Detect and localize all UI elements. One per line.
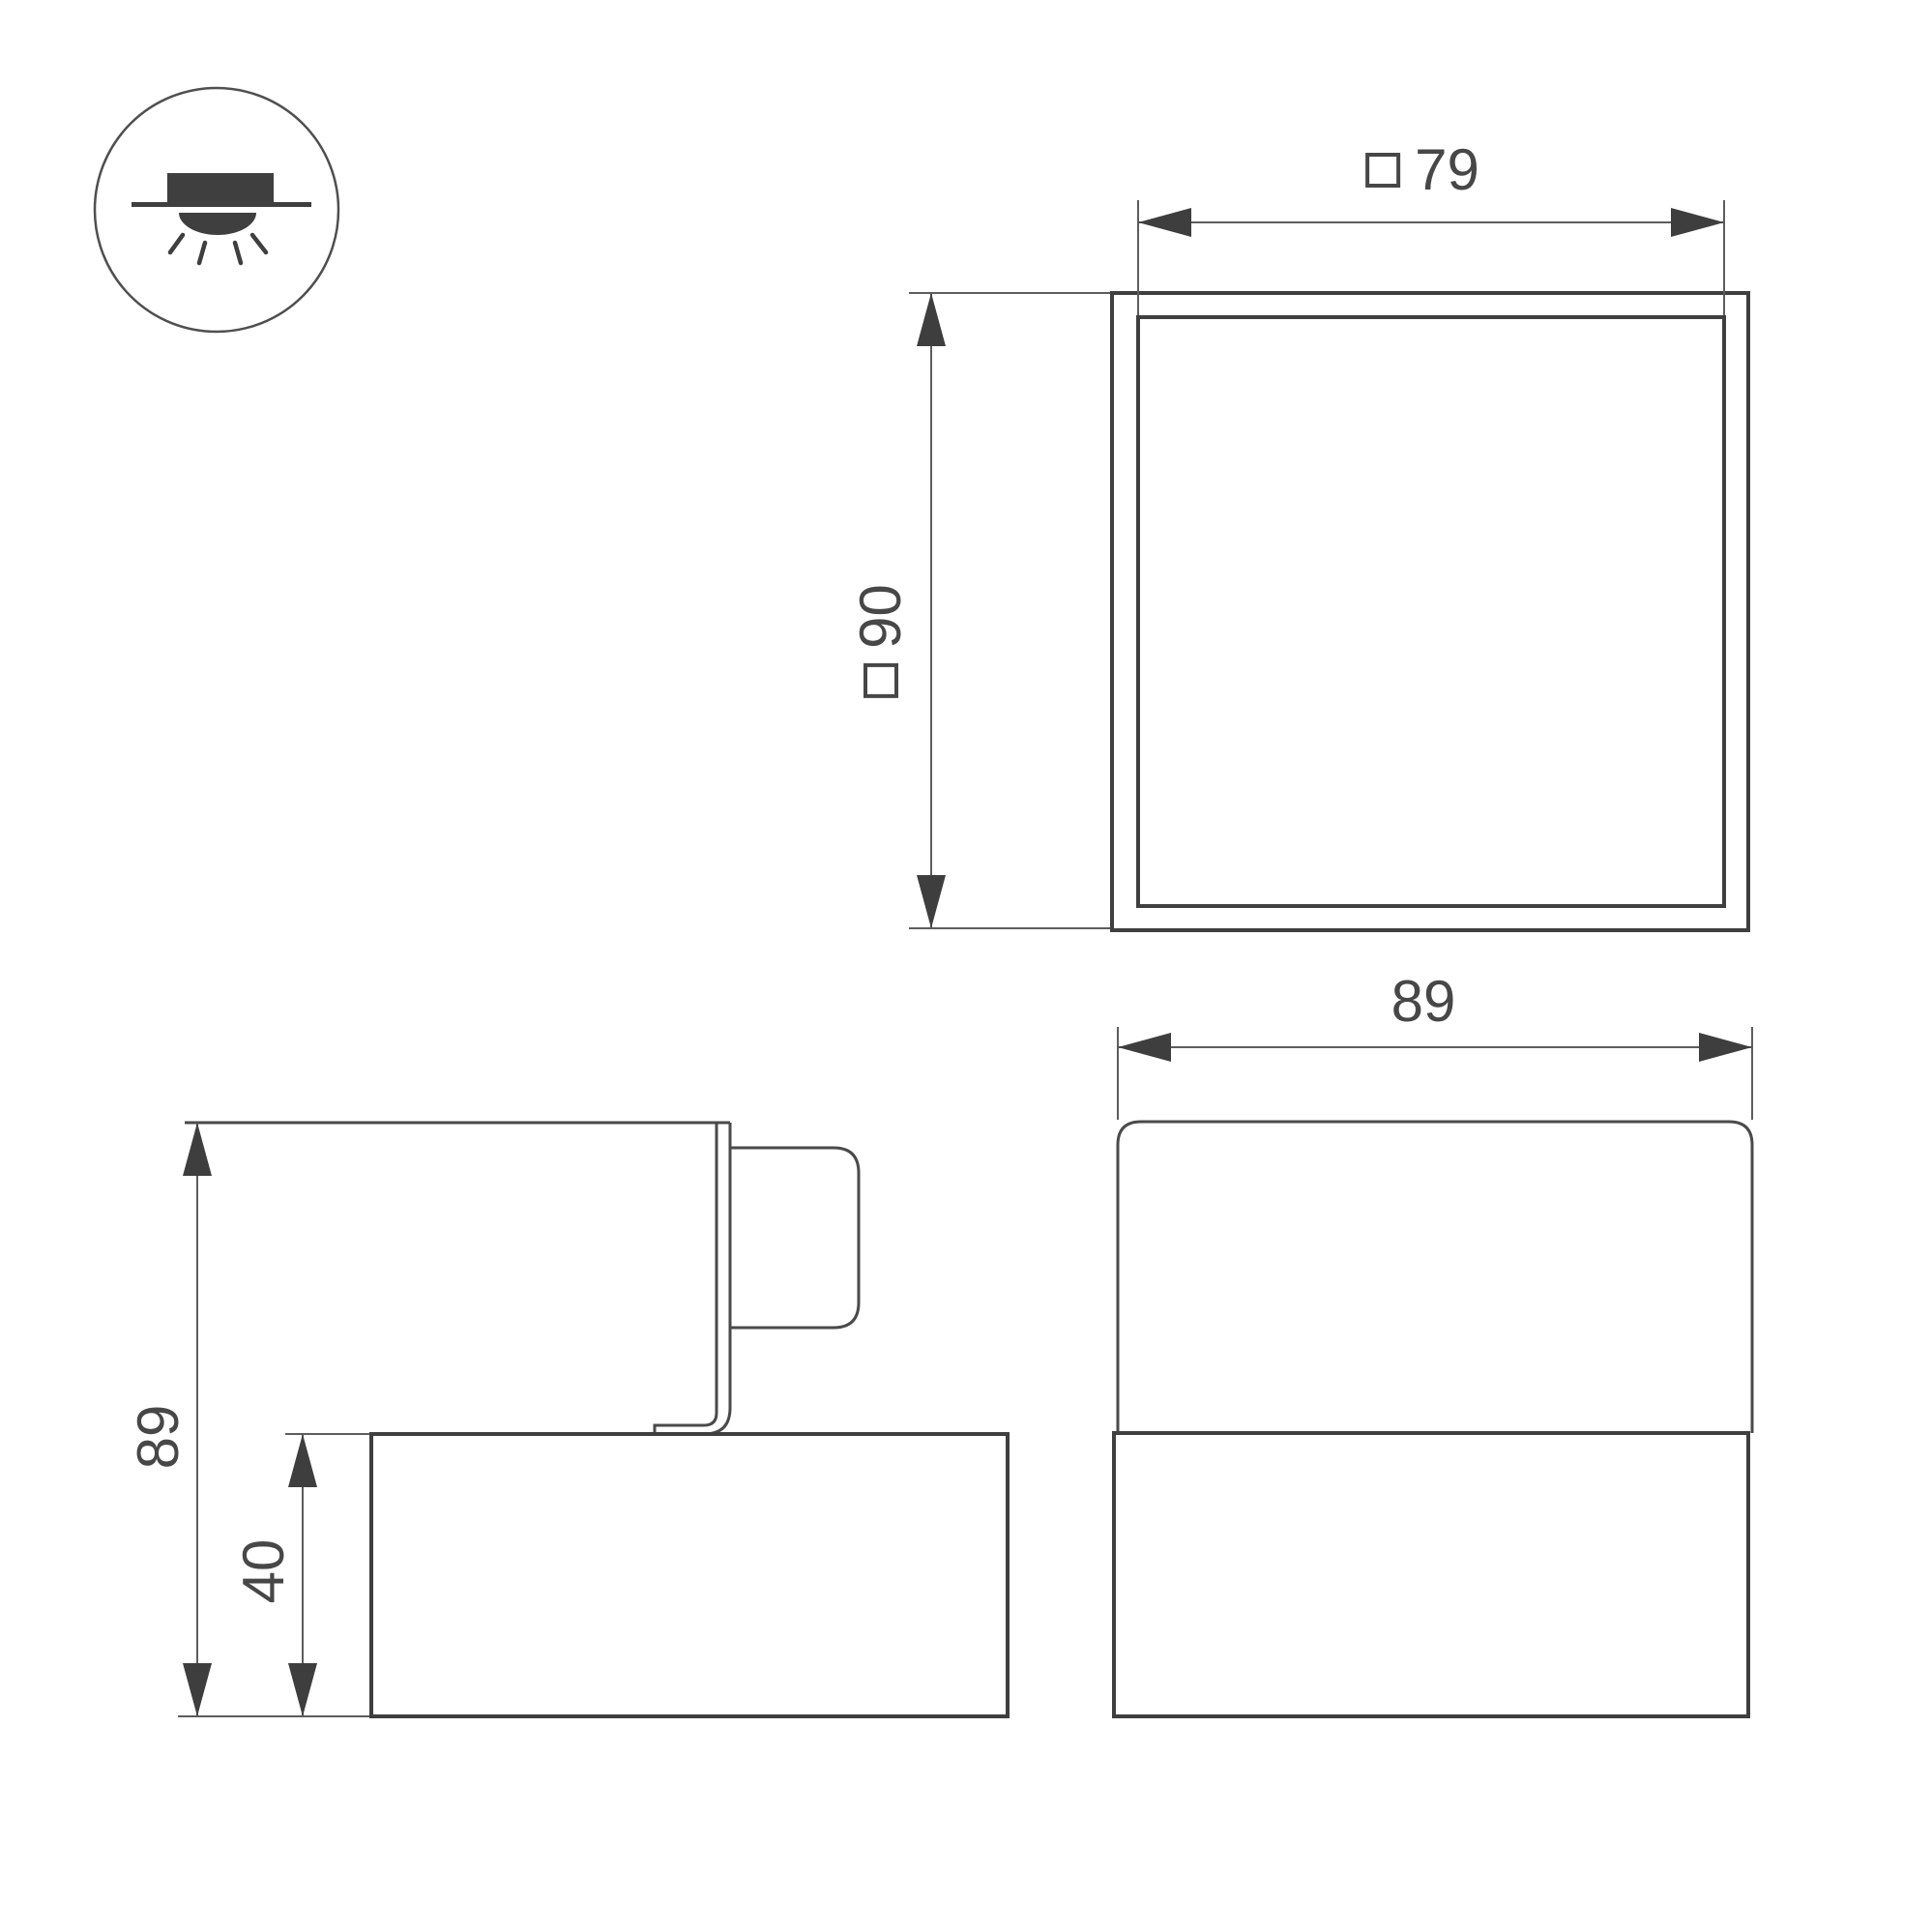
top-view-width-dimension (1138, 200, 1724, 315)
front-view (1114, 1027, 1752, 1716)
top-view-inner-square (1138, 317, 1724, 906)
top-view (909, 200, 1748, 930)
front-view-head (1118, 1122, 1752, 1433)
side-view (178, 1123, 1008, 1716)
square-symbol (864, 663, 898, 698)
icon-circle (95, 88, 338, 332)
top-view-size-dimension (909, 293, 1110, 928)
icon-housing-box (167, 173, 274, 204)
dimension-drawing (0, 0, 1932, 1932)
top-view-width-value: 79 (1415, 141, 1479, 199)
front-view-width-label: 89 (1391, 973, 1456, 1031)
side-view-base-height-dimension (285, 1434, 369, 1716)
surface-downlight-mount-icon (95, 88, 338, 332)
side-view-height-label: 89 (130, 1405, 188, 1470)
front-view-base-block (1114, 1433, 1748, 1716)
side-view-height-value: 89 (130, 1405, 188, 1470)
icon-ceiling-line (132, 202, 311, 207)
side-view-wall-box (730, 1148, 859, 1328)
side-view-height-dimension (178, 1123, 369, 1716)
front-view-width-value: 89 (1391, 973, 1456, 1031)
square-symbol (1365, 153, 1400, 188)
side-view-mount-bracket (655, 1123, 730, 1434)
top-view-width-label: 79 (1365, 141, 1479, 199)
top-view-outer-square (1112, 293, 1748, 930)
top-view-size-value: 90 (852, 584, 910, 649)
technical-drawing-page: 79 90 89 40 89 (0, 0, 1932, 1932)
side-view-base-block (371, 1434, 1008, 1716)
side-view-base-height-value: 40 (235, 1539, 293, 1604)
front-view-width-dimension (1118, 1027, 1752, 1120)
side-view-base-height-label: 40 (235, 1539, 293, 1604)
top-view-size-label: 90 (852, 584, 910, 698)
